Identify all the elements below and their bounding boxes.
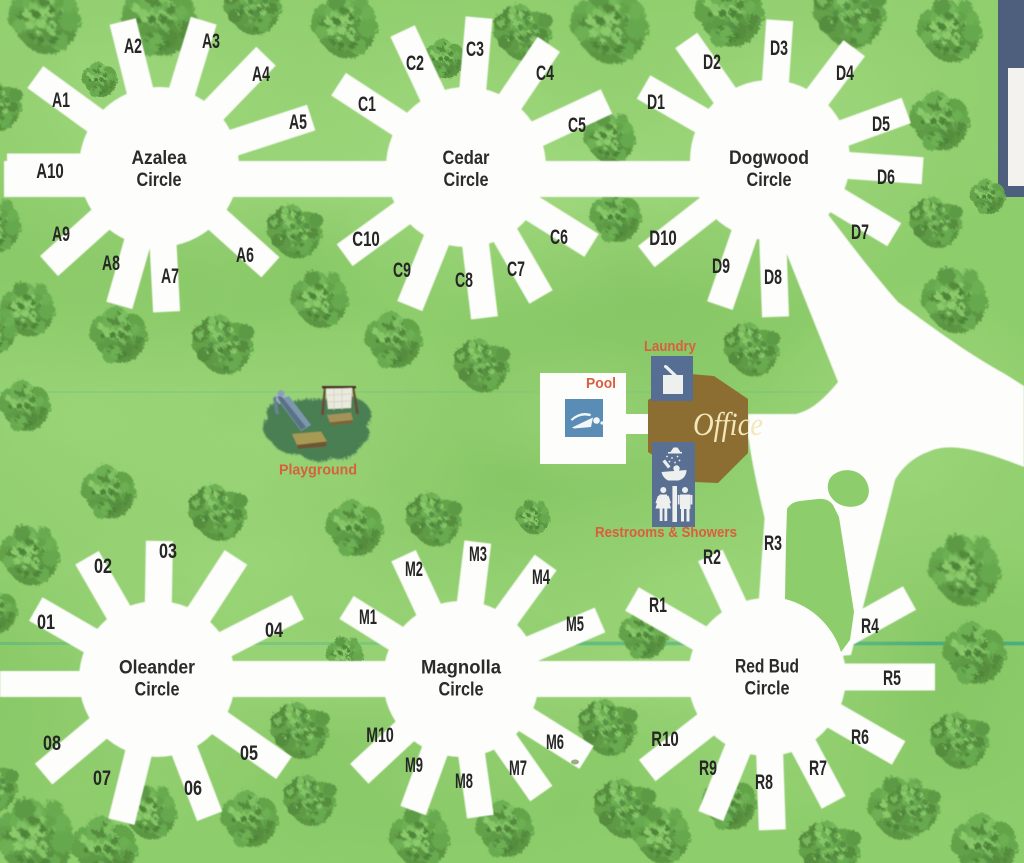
svg-text:C4: C4 — [536, 62, 554, 85]
svg-text:Playground: Playground — [279, 463, 357, 479]
svg-text:06: 06 — [184, 777, 202, 800]
svg-text:R8: R8 — [755, 771, 773, 794]
svg-text:Circle: Circle — [745, 678, 790, 700]
svg-text:C7: C7 — [507, 258, 525, 281]
svg-text:C5: C5 — [568, 114, 586, 137]
svg-text:R5: R5 — [883, 667, 901, 690]
svg-text:Circle: Circle — [747, 169, 792, 191]
svg-text:M8: M8 — [455, 770, 473, 793]
svg-text:Office: Office — [693, 407, 763, 443]
svg-text:Oleander: Oleander — [119, 657, 195, 679]
svg-text:D7: D7 — [851, 221, 869, 244]
svg-text:R10: R10 — [651, 728, 679, 751]
svg-text:Laundry: Laundry — [644, 339, 696, 355]
svg-text:R6: R6 — [851, 726, 869, 749]
svg-text:D6: D6 — [877, 166, 895, 189]
svg-text:08: 08 — [43, 732, 61, 755]
svg-text:R3: R3 — [764, 532, 782, 555]
svg-text:D2: D2 — [703, 51, 721, 74]
svg-text:M5: M5 — [566, 613, 584, 636]
svg-text:R2: R2 — [703, 546, 721, 569]
svg-text:Red Bud: Red Bud — [735, 656, 799, 678]
svg-text:M10: M10 — [366, 724, 394, 747]
svg-text:Pool: Pool — [586, 376, 616, 392]
svg-text:C6: C6 — [550, 226, 568, 249]
svg-text:Restrooms & Showers: Restrooms & Showers — [595, 524, 737, 541]
svg-text:Circle: Circle — [444, 169, 489, 191]
svg-text:C1: C1 — [358, 93, 376, 116]
svg-text:M4: M4 — [532, 566, 550, 589]
svg-text:A10: A10 — [36, 160, 64, 183]
svg-text:01: 01 — [37, 611, 55, 634]
svg-text:D4: D4 — [836, 62, 854, 85]
svg-text:A2: A2 — [124, 35, 142, 58]
svg-text:D1: D1 — [647, 91, 665, 114]
svg-text:C9: C9 — [393, 259, 411, 282]
svg-text:M9: M9 — [405, 754, 423, 777]
svg-text:M3: M3 — [469, 543, 487, 566]
svg-text:M6: M6 — [546, 731, 564, 754]
svg-text:D3: D3 — [770, 37, 788, 60]
svg-text:R4: R4 — [861, 615, 879, 638]
svg-text:D9: D9 — [712, 255, 730, 278]
svg-text:C10: C10 — [352, 228, 380, 251]
svg-text:Azalea: Azalea — [132, 147, 187, 169]
svg-text:Circle: Circle — [135, 679, 180, 701]
svg-text:A1: A1 — [52, 89, 70, 112]
svg-text:05: 05 — [240, 742, 258, 765]
svg-text:Dogwood: Dogwood — [729, 147, 809, 169]
svg-text:A3: A3 — [202, 30, 220, 53]
svg-text:R7: R7 — [809, 757, 827, 780]
svg-text:M7: M7 — [509, 757, 527, 780]
svg-text:A6: A6 — [236, 244, 254, 267]
svg-text:D10: D10 — [649, 227, 677, 250]
svg-text:M1: M1 — [359, 606, 377, 629]
svg-text:C8: C8 — [455, 269, 473, 292]
svg-text:A4: A4 — [252, 63, 270, 86]
svg-text:03: 03 — [159, 540, 177, 563]
svg-text:Circle: Circle — [439, 679, 484, 701]
svg-text:02: 02 — [94, 555, 112, 578]
svg-text:A7: A7 — [161, 265, 179, 288]
svg-text:Circle: Circle — [137, 169, 182, 191]
svg-text:07: 07 — [93, 767, 111, 790]
svg-text:D8: D8 — [764, 266, 782, 289]
svg-text:R1: R1 — [649, 594, 667, 617]
svg-text:M2: M2 — [405, 558, 423, 581]
svg-text:R9: R9 — [699, 757, 717, 780]
svg-text:C3: C3 — [466, 38, 484, 61]
svg-text:Magnolla: Magnolla — [421, 657, 501, 679]
svg-text:C2: C2 — [406, 52, 424, 75]
svg-text:D5: D5 — [872, 113, 890, 136]
svg-text:04: 04 — [265, 619, 283, 642]
svg-text:A9: A9 — [52, 223, 70, 246]
svg-text:Cedar: Cedar — [443, 147, 490, 169]
svg-text:A5: A5 — [289, 111, 307, 134]
svg-text:A8: A8 — [102, 252, 120, 275]
